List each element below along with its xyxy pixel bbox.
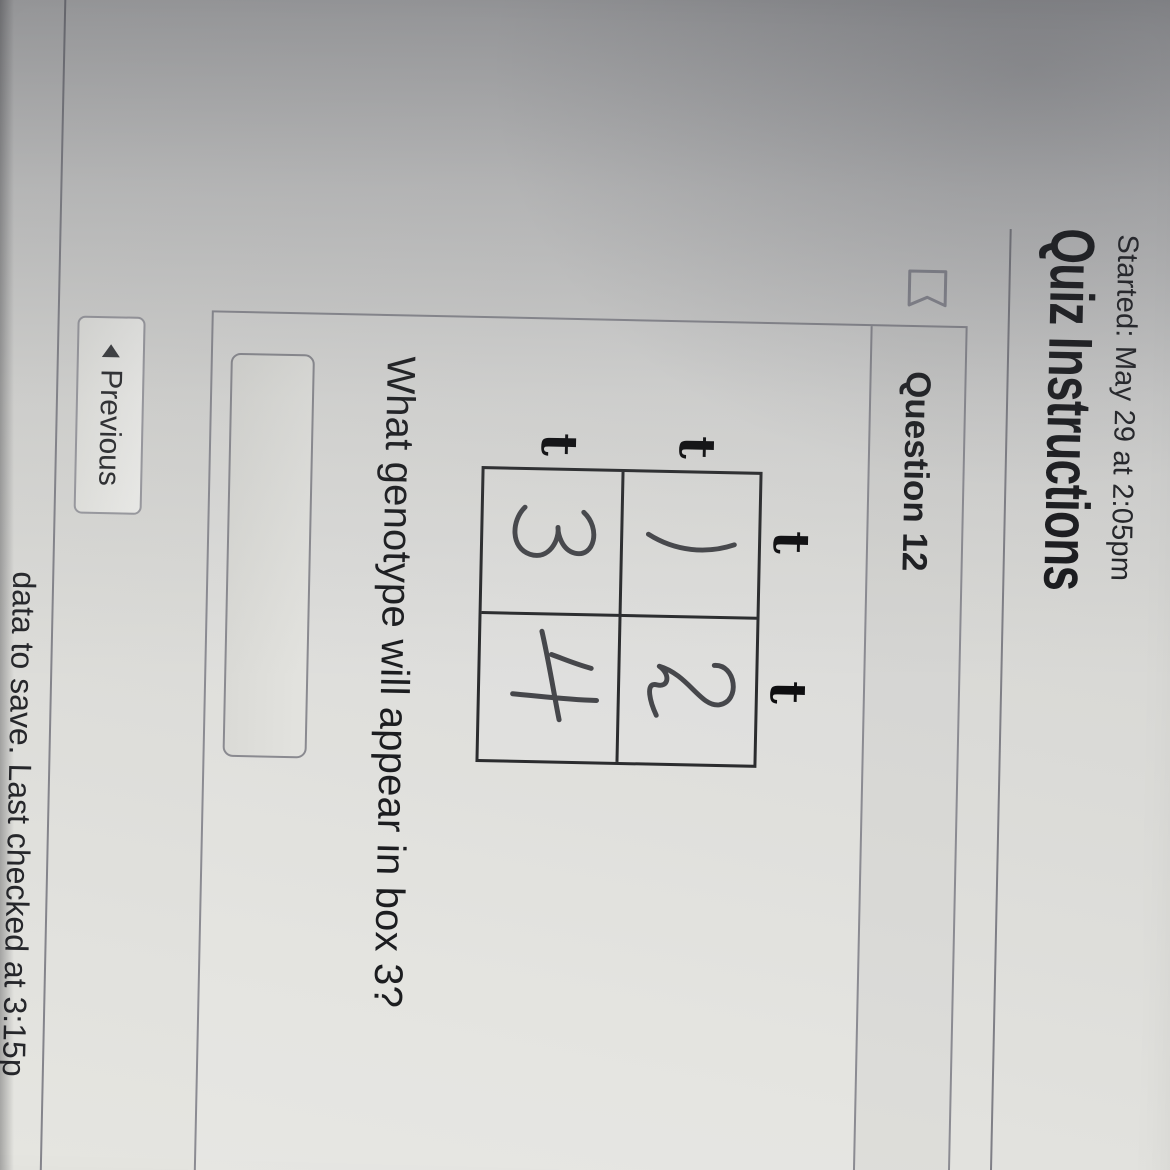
punnett-side-allele-label: t — [530, 432, 589, 456]
flag-question-icon[interactable] — [904, 265, 951, 314]
screen: Started: May 29 at 2:05pm Quiz Instructi… — [0, 0, 1170, 1170]
previous-button-label: Previous — [91, 369, 127, 486]
autosave-status: data to save. Last checked at 3:15p — [0, 571, 42, 1077]
answer-input[interactable] — [222, 353, 314, 759]
punnett-cell-2 — [616, 617, 757, 765]
handwritten-number-1 — [622, 472, 759, 617]
punnett-cell-4 — [479, 614, 620, 762]
punnett-side-allele-label: t — [668, 435, 727, 459]
photo-of-screen: Started: May 29 at 2:05pm Quiz Instructi… — [0, 0, 1170, 1170]
previous-button[interactable]: Previous — [74, 316, 146, 515]
punnett-cell-1 — [619, 472, 760, 620]
punnett-top-allele-label: t — [762, 530, 821, 554]
handwritten-number-4 — [479, 614, 620, 762]
punnett-top-allele-label: t — [759, 680, 818, 704]
question-card-title: Question 12 — [894, 371, 938, 572]
handwritten-number-2 — [619, 617, 757, 765]
quiz-started-timestamp: Started: May 29 at 2:05pm — [1103, 234, 1143, 581]
punnett-grid — [475, 466, 762, 768]
punnett-square-image: t t t t — [466, 401, 824, 788]
previous-arrow-icon — [102, 344, 120, 357]
handwritten-number-3 — [482, 469, 622, 614]
page-title: Quiz Instructions — [1029, 228, 1108, 592]
title-divider — [980, 229, 1011, 1170]
quiz-page: Started: May 29 at 2:05pm Quiz Instructi… — [0, 0, 1170, 1170]
punnett-cell-3 — [482, 469, 623, 617]
question-card-header: Question 12 — [841, 326, 965, 1170]
